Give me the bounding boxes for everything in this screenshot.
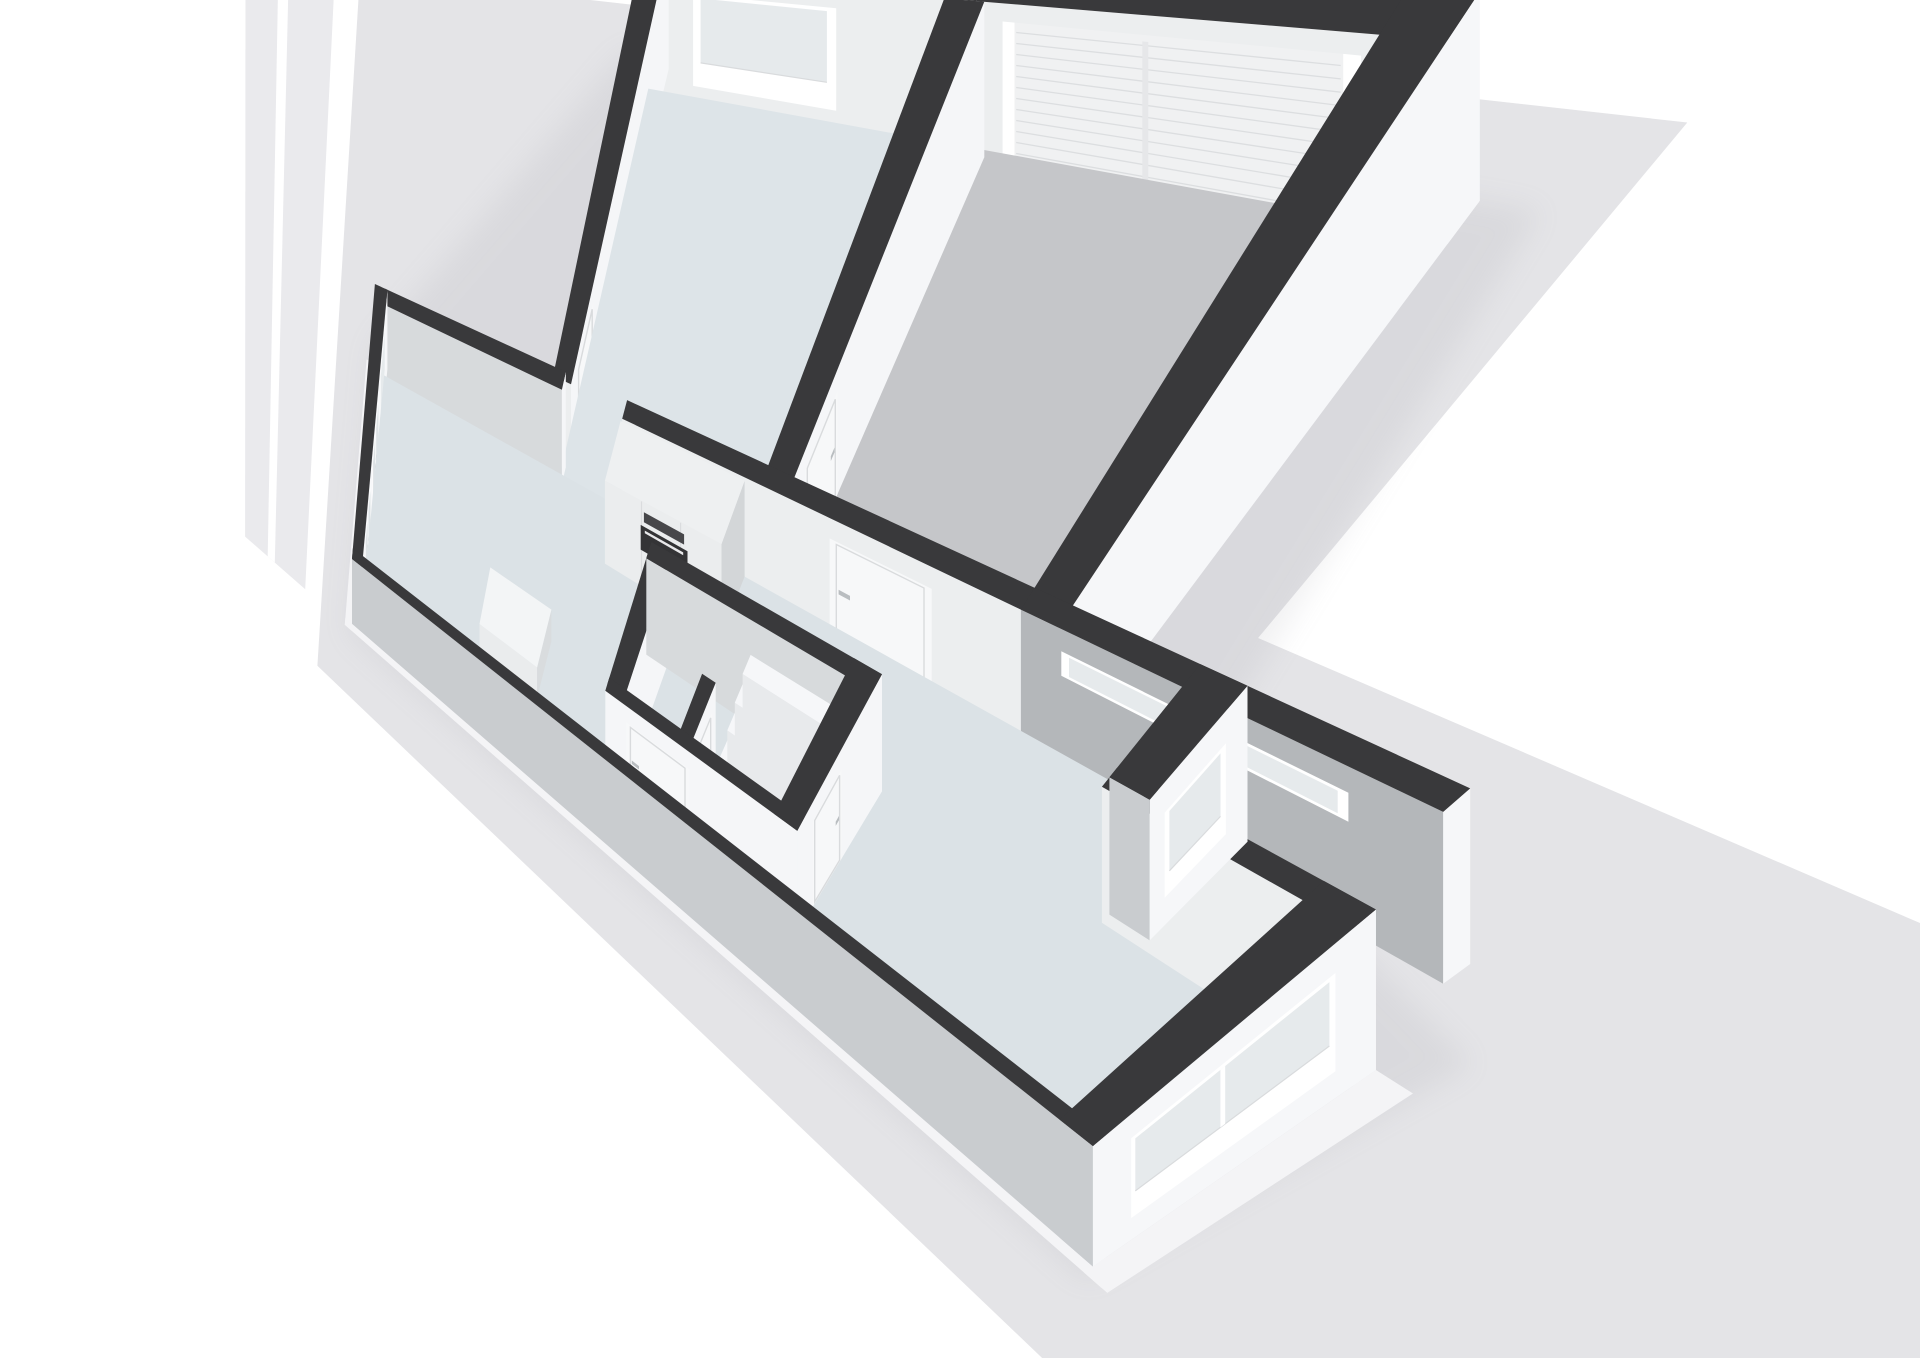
- livingroom-north-wall-side-face: [1443, 788, 1470, 983]
- east-facade-wall-window: [1220, 1066, 1225, 1128]
- garage-north-wall-roller: [1003, 22, 1015, 162]
- garage-north-wall-roller: [1142, 41, 1148, 180]
- road-left: [245, 0, 336, 589]
- floorplan-3d-scene: [0, 0, 1920, 1358]
- floorplan-render: [245, 0, 1920, 1358]
- kitchen-north-wall-side-face: [562, 372, 566, 484]
- page: [0, 0, 1920, 1358]
- notch-side-wall-front-face: [1109, 777, 1149, 940]
